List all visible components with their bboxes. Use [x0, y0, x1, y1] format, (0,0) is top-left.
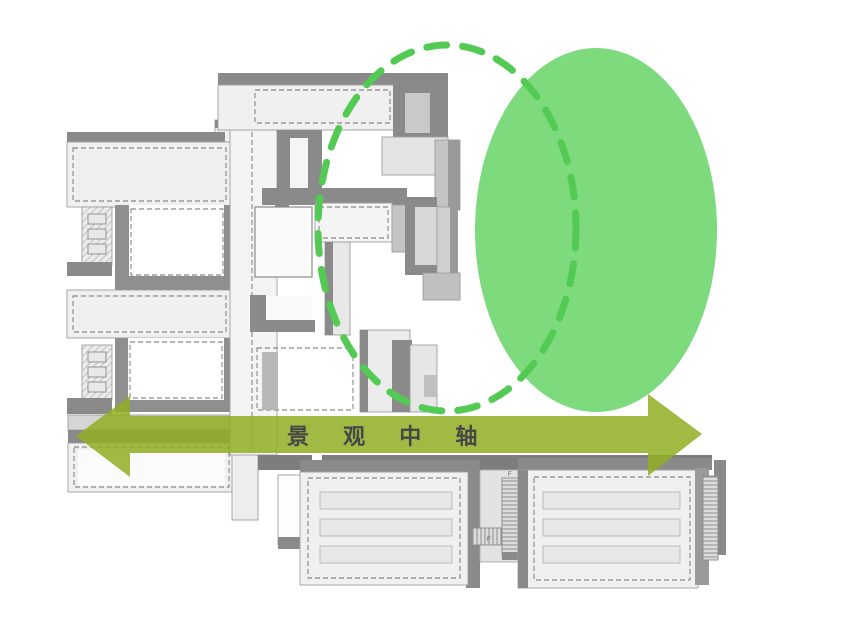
left-slab-strip-2 — [320, 519, 452, 536]
mid-slab — [315, 203, 392, 242]
low-slab-edge — [262, 352, 278, 410]
small-block-shadow — [278, 537, 302, 549]
south-slab-buildings: F F — [258, 455, 726, 588]
right-slab-west-shadow — [518, 470, 528, 588]
connector-shadow — [502, 552, 520, 560]
mid-slab-side — [392, 205, 407, 252]
south-block-2-step — [424, 375, 437, 397]
courtyard-2-south-wall — [115, 400, 230, 412]
stair-core-1-flight — [88, 214, 106, 224]
stair-core-1-flight — [88, 229, 106, 239]
stair-core-2-flight — [88, 382, 106, 392]
courtyard-1-south-wall — [115, 276, 230, 290]
stair-label-f2: F — [487, 537, 491, 543]
stair-core-2-flight — [88, 367, 106, 377]
low-courtyard — [266, 296, 312, 320]
tower-ne-side-shadow — [448, 140, 460, 210]
axis-label-text: 景 观 中 轴 — [287, 424, 491, 449]
stair-label-f1: F — [508, 472, 512, 478]
left-slab-roof — [300, 460, 480, 472]
slab-b — [67, 290, 232, 338]
slab-c-inner — [78, 450, 225, 486]
right-slab-strip-3 — [543, 546, 680, 563]
mid-tower-step — [423, 273, 460, 300]
left-slab-strip-1 — [320, 492, 452, 509]
tower-ne-face — [405, 93, 430, 133]
small-block — [278, 475, 302, 545]
slab-a — [67, 142, 232, 207]
concept-diagram: F F 景 观 中 轴 — [0, 0, 852, 635]
stair-core-1-flight — [88, 244, 106, 254]
diagram-canvas: F F 景 观 中 轴 — [0, 0, 852, 635]
slab-t-roof-edge — [218, 73, 448, 85]
green-space-ellipse — [475, 48, 717, 412]
right-slab-strip-2 — [543, 519, 680, 536]
stair-core-1-shadow — [67, 262, 112, 276]
stair-core-2-flight — [88, 352, 106, 362]
right-core-stair — [703, 476, 718, 560]
courtyard-1-east-wall — [224, 205, 230, 290]
mid-courtyard — [255, 207, 312, 277]
stair-core-2-shadow — [67, 398, 112, 414]
right-slab-roof — [518, 458, 712, 470]
connector-stair — [502, 478, 518, 556]
low-courtyard-south-wall — [250, 320, 315, 332]
left-slab-strip-3 — [320, 546, 452, 563]
u-block-court — [290, 138, 308, 193]
mid-tower-face — [415, 207, 437, 265]
courtyard-2-east-wall — [224, 338, 230, 412]
central-spine-lower — [232, 455, 258, 520]
right-slab-strip-1 — [543, 492, 680, 509]
slab-a-roof-edge — [67, 132, 225, 142]
